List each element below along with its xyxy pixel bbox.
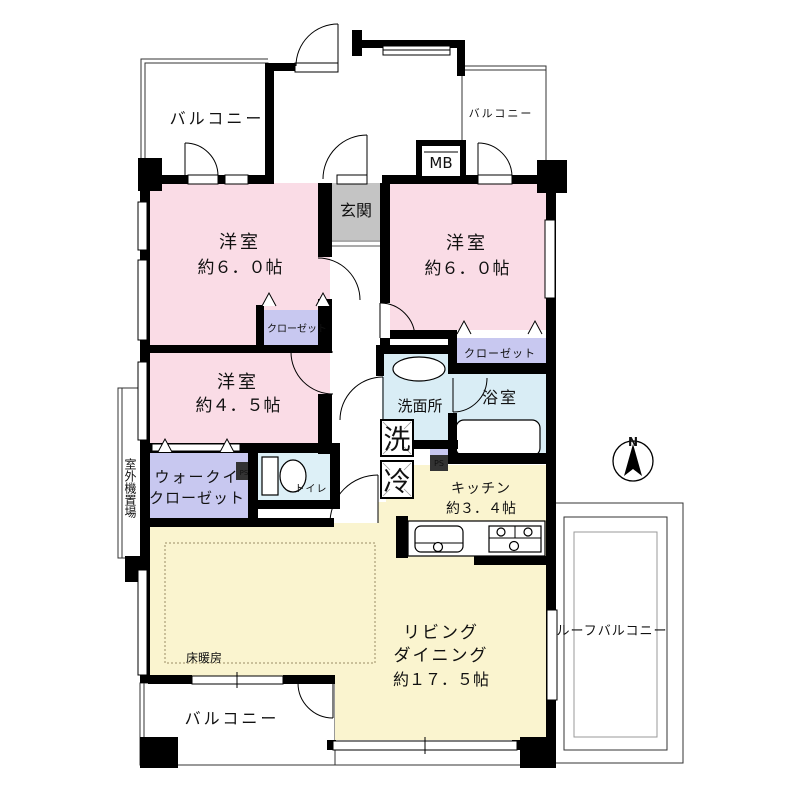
meter-box-label: MB xyxy=(429,154,452,172)
floor-heating-label: 床暖房 xyxy=(186,650,222,665)
bedroom-left-size: 約６．０帖 xyxy=(198,258,283,278)
compass-n-label: N xyxy=(628,435,638,449)
floorplan-drawing: N バルコニー バルコニー MB 玄関 洋室 約６．０帖 洋室 約６．０帖 洋室… xyxy=(0,0,800,800)
bedroom-right-area xyxy=(390,183,546,330)
floorplan-page: N バルコニー バルコニー MB 玄関 洋室 約６．０帖 洋室 約６．０帖 洋室… xyxy=(0,0,800,800)
balcony-top-left-label: バルコニー xyxy=(170,109,265,128)
roof-balcony-label: ルーフバルコニー xyxy=(557,624,668,639)
bedroom-right-size: 約６．０帖 xyxy=(425,259,510,279)
bedroom-right-name: 洋室 xyxy=(446,233,488,254)
washer-label: 洗 xyxy=(384,425,411,456)
fridge-label: 冷 xyxy=(384,467,411,498)
entrance-label: 玄関 xyxy=(340,201,372,220)
bedroom-small-name: 洋室 xyxy=(217,372,259,393)
kitchen-size: 約３．４帖 xyxy=(446,501,516,517)
bathroom-label: 浴室 xyxy=(482,388,518,407)
bedroom-small-size: 約４．５帖 xyxy=(196,396,281,416)
pipe-space-2-label: PS xyxy=(434,459,444,468)
washroom-label: 洗面所 xyxy=(397,397,442,415)
toilet-tank xyxy=(262,457,278,495)
outdoor-unit-label: 室外機置場 xyxy=(123,457,137,519)
living-dining-size: 約１７．５帖 xyxy=(393,670,489,689)
closet-right-label: クローゼット xyxy=(464,347,536,360)
walk-in-closet-label-1: ウォークイ xyxy=(154,468,239,486)
balcony-bottom-label: バルコニー xyxy=(185,709,280,728)
closet-left-label: クローゼット xyxy=(267,323,327,335)
kitchen-name: キッチン xyxy=(451,481,511,497)
toilet-label: トイレ xyxy=(295,484,328,495)
pipe-space-1-label: PS xyxy=(240,469,249,477)
bathtub xyxy=(456,420,540,456)
north-compass: N xyxy=(613,435,653,481)
entrance-step xyxy=(332,241,380,246)
living-dining-name-1: リビング xyxy=(403,623,479,643)
bedroom-left-name: 洋室 xyxy=(219,232,261,253)
living-dining-name-2: ダイニング xyxy=(394,646,489,666)
walk-in-closet-label-2: クローゼット xyxy=(149,489,245,507)
balcony-top-right-area xyxy=(462,66,546,178)
washroom-sink xyxy=(393,357,445,381)
balcony-top-right-label: バルコニー xyxy=(469,107,534,120)
